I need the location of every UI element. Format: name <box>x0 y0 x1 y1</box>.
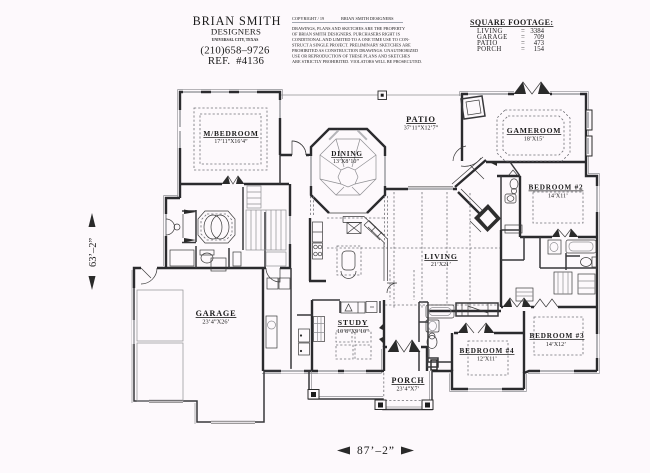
svg-text:21’X21’: 21’X21’ <box>431 262 451 268</box>
svg-text:12’X11’: 12’X11’ <box>477 357 497 363</box>
svg-text:37’11”X12’7”: 37’11”X12’7” <box>404 126 439 132</box>
svg-text:UNIVERSAL CITY, TEXAS: UNIVERSAL CITY, TEXAS <box>212 38 259 42</box>
svg-text:USE OR REPRODUCTION OF THE: USE OR REPRODUCTION OF THESE PLANS AND S… <box>292 54 411 59</box>
svg-text:DESIGNERS: DESIGNERS <box>211 27 261 37</box>
svg-text:SQUARE FOOTAGE:: SQUARE FOOTAGE: <box>470 18 553 27</box>
svg-text:14’X11’: 14’X11’ <box>548 194 568 200</box>
svg-text:=: = <box>521 46 525 53</box>
svg-text:PORCH: PORCH <box>477 46 502 53</box>
svg-text:BRIAN SMITH DESIGNERS: BRIAN SMITH DESIGNERS <box>341 16 394 21</box>
svg-text:PATIO: PATIO <box>406 114 436 124</box>
svg-text:BEDROOM #2: BEDROOM #2 <box>529 184 584 192</box>
svg-text:PORCH: PORCH <box>392 376 425 385</box>
svg-text:63’–2”: 63’–2” <box>88 238 99 267</box>
svg-text:PROHIBITED AS CONSTRUCTION: PROHIBITED AS CONSTRUCTION DRAWINGS. UNA… <box>292 48 418 53</box>
svg-text:87’–2”: 87’–2” <box>357 445 395 457</box>
svg-text:13’X8’10”: 13’X8’10” <box>333 159 359 165</box>
svg-text:STUDY: STUDY <box>338 318 368 327</box>
svg-text:LIVING: LIVING <box>424 252 457 261</box>
svg-text:M/BEDROOM: M/BEDROOM <box>203 129 258 138</box>
svg-text:14’X12’: 14’X12’ <box>546 342 566 348</box>
svg-text:COPYRIGHT / 19: COPYRIGHT / 19 <box>292 16 324 21</box>
svg-text:REF. #4136: REF. #4136 <box>208 55 265 67</box>
svg-text:154: 154 <box>534 46 545 53</box>
svg-text:17’11”X16’4”: 17’11”X16’4” <box>214 139 248 145</box>
svg-text:GAMEROOM: GAMEROOM <box>507 126 562 135</box>
svg-text:OF BRIAN SMITH DESIGNERS.: OF BRIAN SMITH DESIGNERS. PURCHASERS RIG… <box>292 32 401 37</box>
svg-text:BEDROOM #4: BEDROOM #4 <box>460 347 515 355</box>
svg-text:18’X15’: 18’X15’ <box>524 137 544 143</box>
svg-text:23’4”X26’: 23’4”X26’ <box>202 319 229 326</box>
svg-text:BEDROOM #3: BEDROOM #3 <box>530 332 585 340</box>
svg-text:STRUCT A SINGLE PROJECT.: STRUCT A SINGLE PROJECT. PRELIMINARY SKE… <box>292 43 411 48</box>
svg-text:DINING: DINING <box>331 150 363 158</box>
svg-text:10’8”X9’10”: 10’8”X9’10” <box>337 329 369 335</box>
svg-text:CONDITIONAL AND LIMITED TO: CONDITIONAL AND LIMITED TO A ONE TIME US… <box>292 37 410 42</box>
svg-text:ARE STRICTLY PROHIBITED. V: ARE STRICTLY PROHIBITED. VIOLATORS WILL … <box>292 59 422 64</box>
svg-text:23’4”X7’: 23’4”X7’ <box>397 387 420 393</box>
svg-text:GARAGE: GARAGE <box>196 309 237 318</box>
